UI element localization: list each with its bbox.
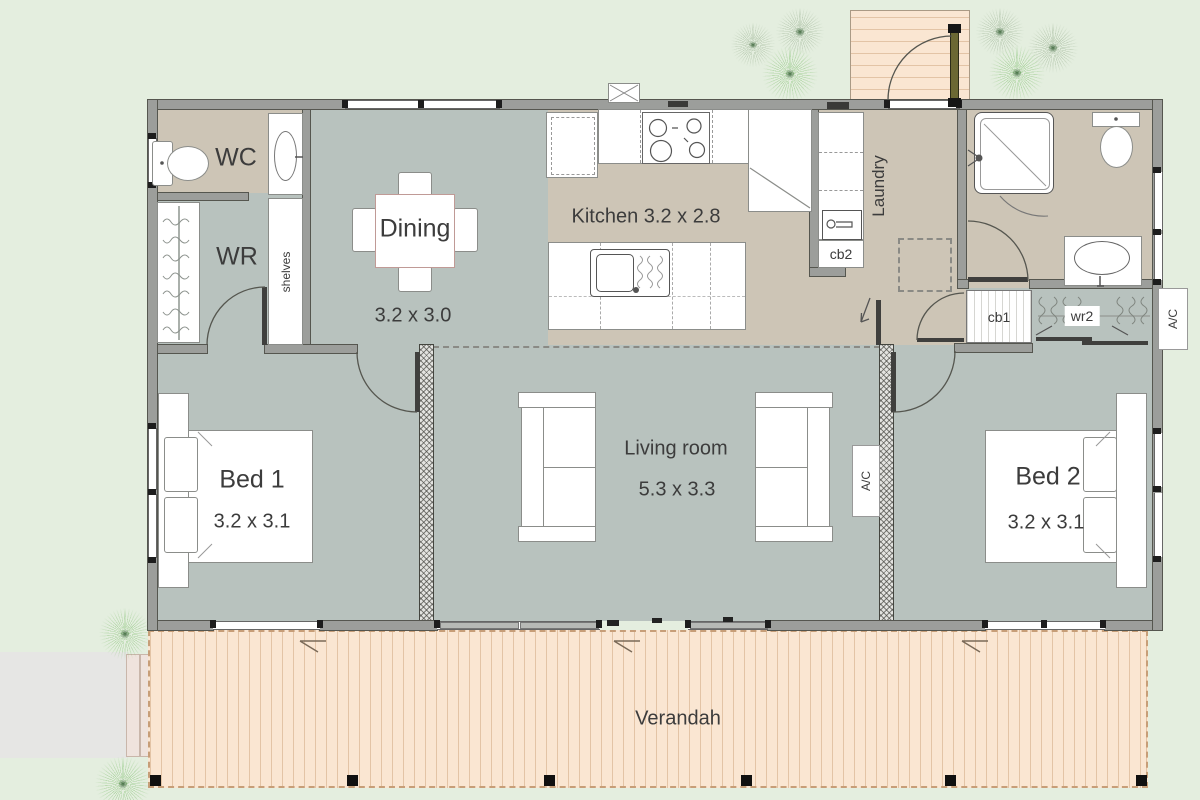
wr-label: WR bbox=[216, 243, 258, 272]
wall-vent bbox=[827, 102, 849, 109]
cb2-label: cb2 bbox=[830, 246, 853, 262]
bed2-dims: 3.2 x 3.1 bbox=[1008, 512, 1085, 535]
window-clip bbox=[434, 620, 440, 628]
sofa-left-back bbox=[521, 407, 544, 527]
wall-hall-bathroom bbox=[958, 280, 968, 288]
window-bath-east-2 bbox=[1154, 234, 1163, 280]
dining-chair-right bbox=[453, 208, 478, 252]
sofa-right-back bbox=[807, 407, 830, 527]
door-leaf-hall bbox=[917, 338, 964, 342]
laundry-counter-divider bbox=[819, 152, 863, 153]
bath-basin bbox=[1074, 241, 1130, 275]
sofa-right-cushion bbox=[755, 407, 808, 468]
wc-label: WC bbox=[215, 144, 257, 173]
window-clip bbox=[765, 620, 771, 628]
wall-laundry-nib bbox=[810, 268, 845, 276]
kitchen-fridge-inner bbox=[551, 117, 595, 175]
verandah-post bbox=[544, 775, 555, 786]
wall-wc-bottom bbox=[157, 193, 248, 200]
dining-dims: 3.2 x 3.0 bbox=[375, 305, 452, 328]
wall-dining-left bbox=[303, 109, 310, 345]
verandah-post bbox=[945, 775, 956, 786]
step-left-1 bbox=[126, 654, 140, 757]
door-leaf-entry bbox=[950, 30, 959, 101]
window-clip bbox=[1100, 620, 1106, 628]
door-track-mark bbox=[723, 617, 733, 622]
dining-label: Dining bbox=[380, 215, 451, 244]
window-clip bbox=[148, 133, 156, 139]
window-clip bbox=[884, 100, 890, 108]
wall-bathroom-left bbox=[958, 109, 966, 285]
window-clip bbox=[210, 620, 216, 628]
window-clip bbox=[342, 100, 348, 108]
sofa-left-armrest-top bbox=[518, 392, 596, 408]
door-hinge-cap bbox=[948, 98, 961, 107]
window-clip bbox=[596, 620, 602, 628]
tree bbox=[760, 44, 820, 104]
sink-bowl bbox=[596, 254, 634, 292]
openplan-dashed-line bbox=[433, 346, 880, 348]
laundry-counter-divider bbox=[819, 190, 863, 191]
bed2-label: Bed 2 bbox=[1015, 463, 1080, 492]
wc-basin-bowl bbox=[274, 131, 297, 181]
wall-exterior-bottom-1 bbox=[148, 621, 213, 630]
bed1-dims: 3.2 x 3.1 bbox=[214, 511, 291, 534]
wall-bed-top-mid bbox=[265, 345, 357, 353]
door-panel bbox=[690, 622, 768, 629]
bed1-pillow bbox=[164, 497, 198, 553]
bed1-mattress bbox=[188, 430, 313, 563]
wall-bed1-living bbox=[420, 345, 433, 621]
sofa-left-armrest-bottom bbox=[518, 526, 596, 542]
floor-plan: WC WR shelves Dining 3.2 x 3.0 Kitchen 3… bbox=[0, 0, 1200, 800]
ac-east-label: A/C bbox=[1166, 309, 1180, 329]
tree bbox=[97, 606, 153, 662]
window-clip bbox=[1153, 556, 1161, 562]
bed2-headboard bbox=[1116, 393, 1147, 588]
kitchen-corner-pantry bbox=[748, 109, 812, 212]
living-dims: 5.3 x 3.3 bbox=[639, 479, 716, 502]
verandah-label: Verandah bbox=[635, 708, 721, 731]
verandah-post bbox=[1136, 775, 1147, 786]
window-clip bbox=[148, 489, 156, 495]
dining-chair-bottom bbox=[398, 266, 432, 292]
door-panel bbox=[520, 622, 599, 629]
window-clip bbox=[317, 620, 323, 628]
island-divider bbox=[710, 243, 711, 329]
tree bbox=[93, 754, 153, 800]
door-track-mark bbox=[607, 620, 619, 626]
door-leaf-bathroom bbox=[968, 277, 1028, 282]
kitchen-label: Kitchen 3.2 x 2.8 bbox=[572, 206, 721, 229]
verandah-post bbox=[347, 775, 358, 786]
window-clip bbox=[148, 423, 156, 429]
window-bed1-south bbox=[213, 621, 320, 630]
window-clip bbox=[1153, 167, 1161, 173]
window-clip bbox=[1153, 486, 1161, 492]
island-divider bbox=[672, 243, 673, 329]
sofa-right-cushion bbox=[755, 467, 808, 527]
window-clip bbox=[982, 620, 988, 628]
bed1-label: Bed 1 bbox=[219, 466, 284, 495]
window-bed1-west-2 bbox=[148, 494, 157, 558]
bed2-pillow bbox=[1083, 437, 1117, 492]
window-clip bbox=[418, 100, 424, 108]
wr2-slider-2 bbox=[1082, 341, 1148, 345]
toilet2-tank bbox=[1092, 112, 1140, 127]
window-clip bbox=[1153, 428, 1161, 434]
ac-living-label: A/C bbox=[859, 471, 873, 491]
hall-slider-panel bbox=[876, 300, 881, 345]
cb1-label: cb1 bbox=[988, 309, 1011, 325]
wall-exterior-bottom-3 bbox=[768, 621, 985, 630]
sofa-right-armrest-bottom bbox=[755, 526, 833, 542]
window-bath-east-1 bbox=[1154, 172, 1163, 230]
window-clip bbox=[148, 557, 156, 563]
door-leaf-bed2 bbox=[891, 352, 896, 412]
window-clip bbox=[1041, 620, 1047, 628]
dining-chair-left bbox=[352, 208, 377, 252]
counter-divider bbox=[712, 110, 713, 163]
window-clip bbox=[1153, 279, 1161, 285]
shelves-label: shelves bbox=[279, 252, 293, 293]
living-label: Living room bbox=[624, 438, 727, 461]
window-clip bbox=[1153, 229, 1161, 235]
sofa-left-cushion bbox=[543, 467, 596, 527]
hot-water-unit bbox=[898, 238, 952, 292]
bed1-pillow bbox=[164, 437, 198, 492]
toilet-bowl bbox=[167, 146, 209, 181]
counter-divider bbox=[640, 110, 641, 163]
window-clip bbox=[496, 100, 502, 108]
window-clip bbox=[685, 620, 691, 628]
window-bed2-east-1 bbox=[1154, 433, 1163, 487]
laundry-label: Laundry bbox=[869, 155, 889, 216]
window-bed1-west-1 bbox=[148, 428, 157, 490]
meter-box bbox=[608, 83, 640, 103]
window-bed2-east-2 bbox=[1154, 493, 1163, 557]
sofa-right-armrest-top bbox=[755, 392, 833, 408]
bed2-pillow bbox=[1083, 497, 1117, 553]
door-leaf-bed1 bbox=[415, 352, 420, 412]
shower-tray-inner bbox=[980, 118, 1050, 190]
wall-cb1-bottom bbox=[955, 344, 1032, 352]
wr2-label: wr2 bbox=[1065, 306, 1100, 326]
wall-exterior-bottom-2 bbox=[320, 621, 437, 630]
door-panel bbox=[440, 622, 519, 629]
door-track-mark bbox=[652, 618, 662, 623]
door-hinge-cap bbox=[948, 24, 961, 33]
laundry-tub bbox=[822, 210, 862, 240]
wall-vent bbox=[668, 101, 688, 107]
tree bbox=[987, 43, 1047, 103]
kitchen-stove bbox=[642, 112, 710, 164]
sofa-left-cushion bbox=[543, 407, 596, 468]
wr-closet bbox=[157, 202, 200, 343]
verandah-post bbox=[741, 775, 752, 786]
door-leaf-wr bbox=[262, 287, 267, 345]
toilet2-bowl bbox=[1100, 126, 1133, 168]
driveway bbox=[0, 652, 128, 758]
